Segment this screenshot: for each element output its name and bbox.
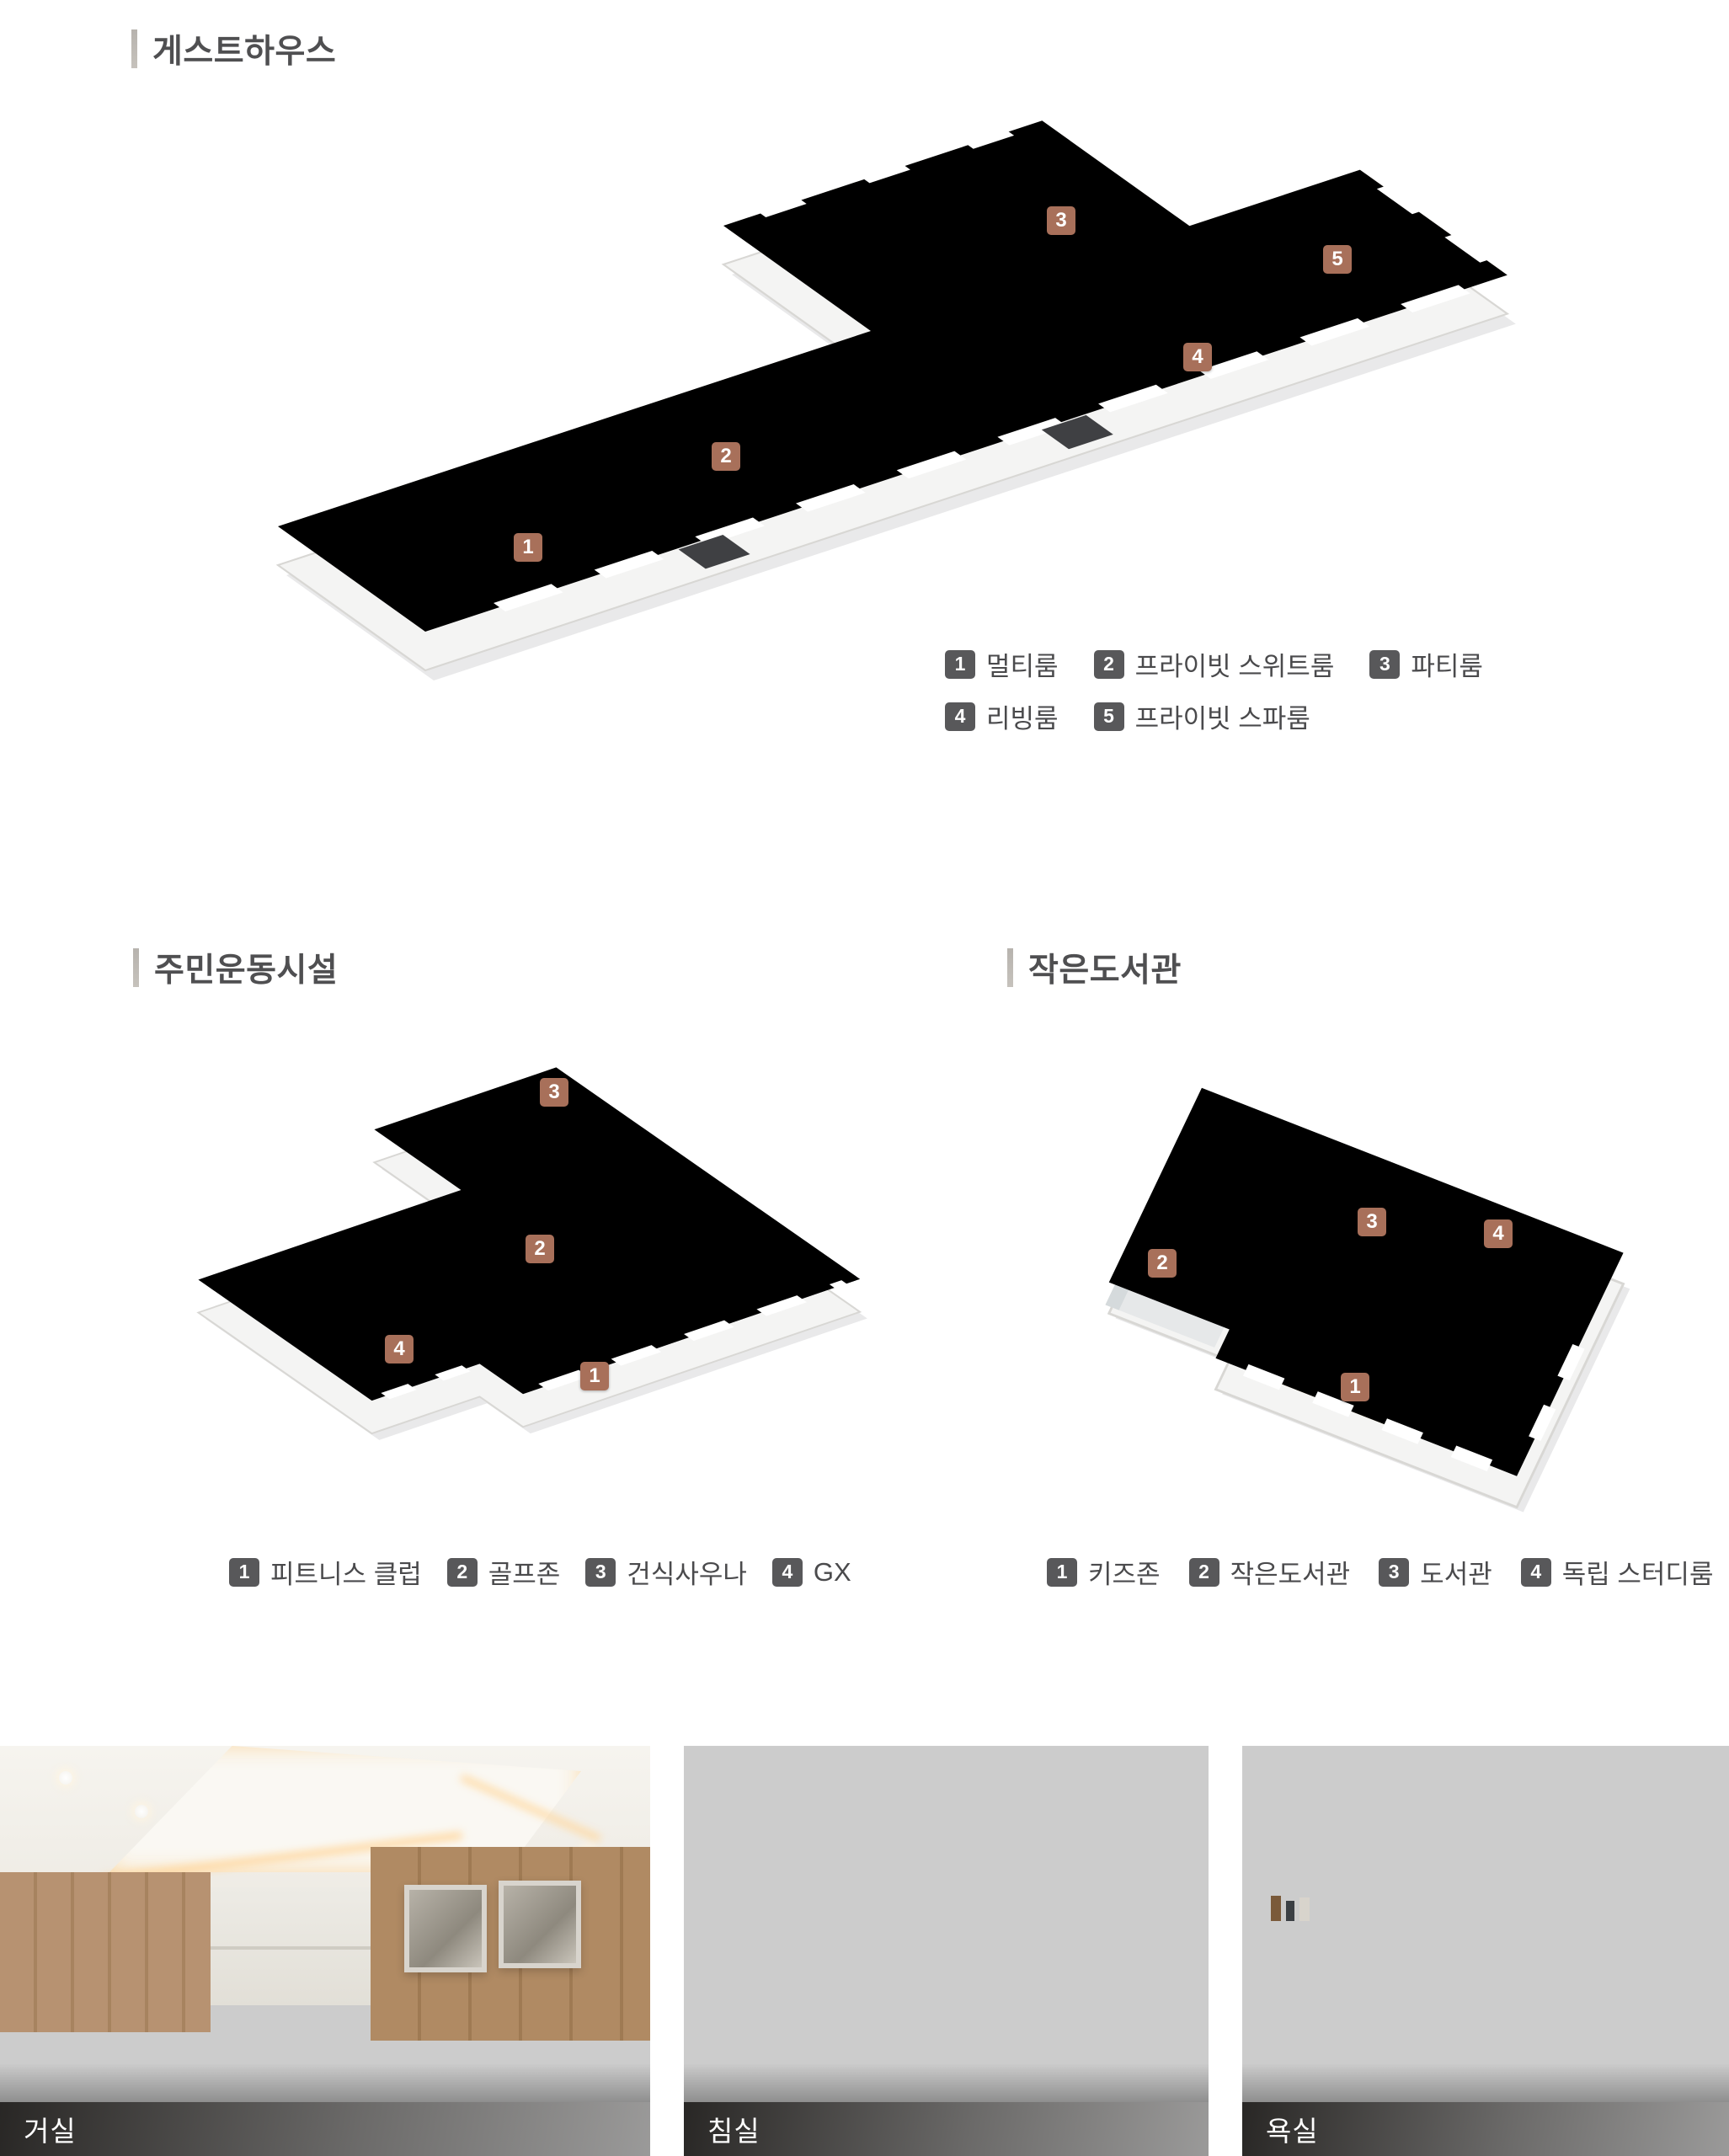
caption-fade xyxy=(1242,2063,1729,2102)
caption-fade xyxy=(0,2063,650,2102)
plan-marker-1: 1 xyxy=(580,1362,609,1390)
legend-item: 1 키즈존 xyxy=(1047,1553,1161,1591)
legend-item: 1 멀티룸 xyxy=(945,645,1059,683)
legend-item: 4 GX xyxy=(772,1557,851,1588)
legend-item: 4 독립 스터디룸 xyxy=(1521,1553,1714,1591)
legend-label: 프라이빗 스파룸 xyxy=(1135,697,1310,735)
photo-bathroom: 욕실 xyxy=(1242,1746,1729,2156)
gym-floorplan: 1 2 3 4 xyxy=(194,995,867,1522)
artwork-frame xyxy=(499,1881,581,1968)
library-floorplan-image xyxy=(1042,1080,1648,1513)
gym-title-text: 주민운동시설 xyxy=(154,944,338,991)
legend-badge: 1 xyxy=(945,650,975,679)
legend-item: 5 프라이빗 스파룸 xyxy=(1094,697,1310,735)
plan-marker-2: 2 xyxy=(1148,1249,1177,1278)
bottle xyxy=(1299,1897,1310,1921)
plan-marker-2: 2 xyxy=(526,1235,554,1263)
guesthouse-floorplan-image xyxy=(236,42,1524,800)
legend-badge: 4 xyxy=(1521,1558,1551,1587)
legend-badge: 1 xyxy=(1047,1558,1077,1587)
legend-item: 2 작은도서관 xyxy=(1189,1553,1351,1591)
artwork xyxy=(504,1886,576,1963)
caption-fade xyxy=(684,2063,1209,2102)
legend-badge: 4 xyxy=(945,702,975,731)
bottle xyxy=(1271,1896,1281,1921)
legend-label: 건식사우나 xyxy=(627,1553,747,1591)
downlight xyxy=(59,1771,72,1785)
brochure-page: { "colors": { "marker_bg": "#a8705a", "b… xyxy=(0,0,1729,2156)
gym-legend: 1 피트니스 클럽 2 골프존 3 건식사우나 4 GX xyxy=(229,1553,851,1591)
legend-label: 골프존 xyxy=(488,1553,561,1591)
title-bar-decoration xyxy=(1007,948,1013,987)
guesthouse-legend-row2: 4 리빙룸 5 프라이빗 스파룸 xyxy=(945,697,1346,735)
gym-title: 주민운동시설 xyxy=(133,944,338,991)
legend-label: 프라이빗 스위트룸 xyxy=(1135,645,1335,683)
downlight xyxy=(135,1805,148,1818)
photo-caption: 욕실 xyxy=(1242,2102,1729,2156)
plan-marker-3: 3 xyxy=(540,1078,568,1107)
guesthouse-legend-row1: 1 멀티룸 2 프라이빗 스위트룸 3 파티룸 xyxy=(945,645,1518,683)
plan-marker-4: 4 xyxy=(385,1335,414,1364)
legend-label: 독립 스터디룸 xyxy=(1562,1553,1714,1591)
legend-label: 멀티룸 xyxy=(986,645,1059,683)
legend-label: GX xyxy=(814,1557,851,1588)
legend-badge: 1 xyxy=(229,1558,259,1587)
legend-badge: 3 xyxy=(1369,650,1400,679)
plan-marker-3: 3 xyxy=(1047,206,1075,235)
bottle xyxy=(1286,1901,1294,1921)
photo-caption-text: 욕실 xyxy=(1266,2109,1319,2149)
plan-marker-4: 4 xyxy=(1484,1219,1513,1248)
legend-item: 3 도서관 xyxy=(1379,1553,1492,1591)
photo-caption-text: 침실 xyxy=(707,2109,760,2149)
photo-caption-text: 거실 xyxy=(24,2109,77,2149)
legend-item: 3 파티룸 xyxy=(1369,645,1483,683)
artwork-frame xyxy=(404,1885,487,1972)
legend-badge: 2 xyxy=(1189,1558,1219,1587)
photo-bedroom: 침실 xyxy=(684,1746,1209,2156)
title-bar-decoration xyxy=(131,29,137,68)
title-bar-decoration xyxy=(133,948,139,987)
plan-marker-3: 3 xyxy=(1358,1208,1386,1236)
photo-caption: 침실 xyxy=(684,2102,1209,2156)
artwork xyxy=(409,1890,482,1967)
photo-caption: 거실 xyxy=(0,2102,650,2156)
plan-marker-4: 4 xyxy=(1183,343,1212,371)
plan-marker-1: 1 xyxy=(1341,1373,1369,1401)
legend-item: 1 피트니스 클럽 xyxy=(229,1553,422,1591)
legend-badge: 2 xyxy=(1094,650,1124,679)
legend-item: 3 건식사우나 xyxy=(585,1553,747,1591)
legend-badge: 5 xyxy=(1094,702,1124,731)
legend-badge: 4 xyxy=(772,1558,803,1587)
legend-item: 2 프라이빗 스위트룸 xyxy=(1094,645,1335,683)
counter-line xyxy=(211,1946,371,1950)
plan-marker-1: 1 xyxy=(514,533,542,562)
library-floorplan: 1 2 3 4 xyxy=(1042,1080,1648,1513)
legend-label: 파티룸 xyxy=(1411,645,1483,683)
legend-label: 작은도서관 xyxy=(1230,1553,1351,1591)
legend-badge: 2 xyxy=(447,1558,478,1587)
library-title-text: 작은도서관 xyxy=(1028,944,1182,991)
plan-marker-2: 2 xyxy=(712,442,740,471)
library-title: 작은도서관 xyxy=(1007,944,1182,991)
legend-label: 도서관 xyxy=(1420,1553,1492,1591)
library-legend: 1 키즈존 2 작은도서관 3 도서관 4 독립 스터디룸 xyxy=(1047,1553,1713,1591)
legend-label: 피트니스 클럽 xyxy=(270,1553,422,1591)
legend-badge: 3 xyxy=(585,1558,616,1587)
legend-label: 키즈존 xyxy=(1088,1553,1161,1591)
legend-label: 리빙룸 xyxy=(986,697,1059,735)
legend-badge: 3 xyxy=(1379,1558,1409,1587)
plan-marker-5: 5 xyxy=(1323,245,1352,274)
legend-item: 2 골프존 xyxy=(447,1553,561,1591)
photo-living-room: 거실 xyxy=(0,1746,650,2156)
guesthouse-floorplan: 1 2 3 4 5 xyxy=(236,42,1524,800)
legend-item: 4 리빙룸 xyxy=(945,697,1059,735)
